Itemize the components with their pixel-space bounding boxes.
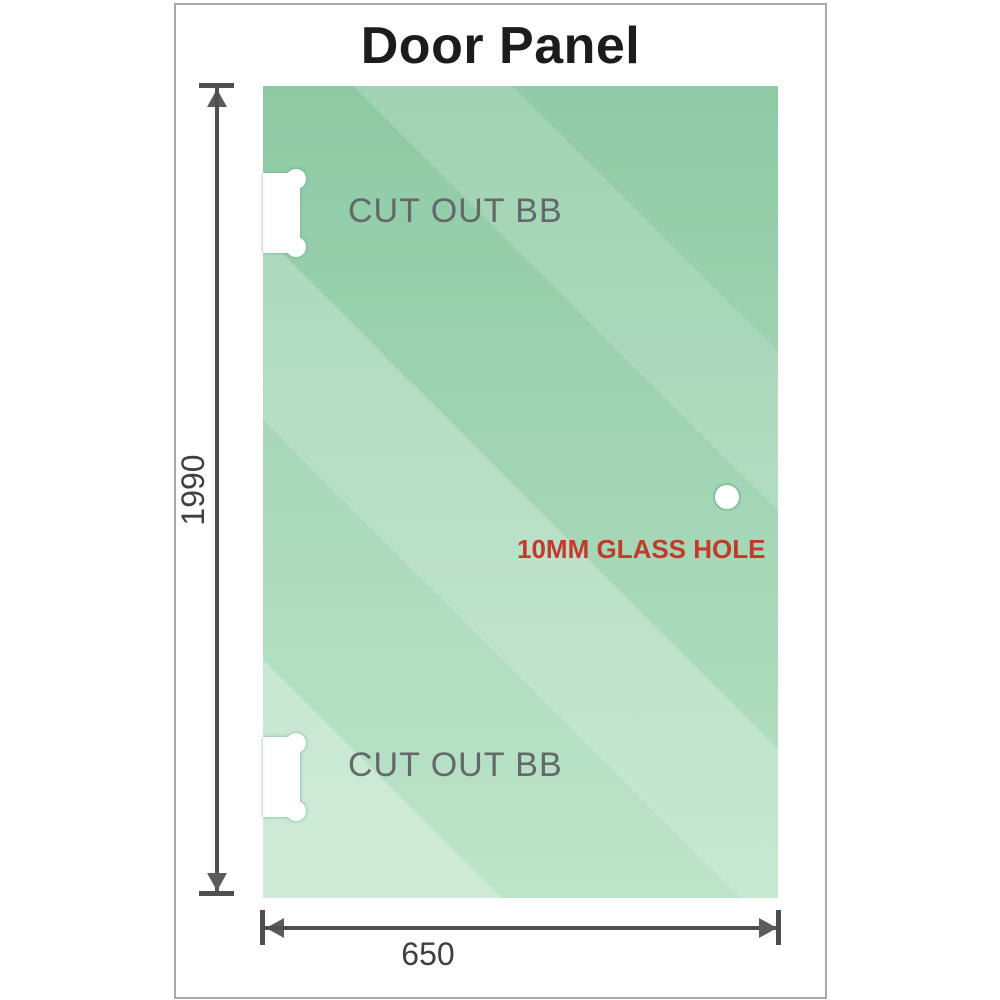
product-diagram-canvas: Door Panel CUT OUT BB CUT OUT BB 10MM GL…	[0, 0, 1000, 1000]
width-dimension-tick-right	[776, 910, 781, 945]
page-title: Door Panel	[174, 16, 827, 76]
width-dimension-value: 650	[383, 936, 473, 973]
hinge-cutout-top-lobe-lower	[286, 237, 306, 257]
hinge-cutout-top	[263, 169, 309, 257]
hinge-cutout-bottom-lobe-upper	[286, 733, 306, 753]
height-dimension-tick-bottom	[199, 891, 234, 896]
width-dimension-line	[265, 926, 776, 930]
height-dimension-line	[215, 88, 219, 891]
height-dimension-value: 1990	[175, 428, 211, 552]
glass-hole	[715, 485, 739, 509]
glass-hole-label: 10MM GLASS HOLE	[517, 534, 765, 565]
hinge-cutout-bottom	[263, 733, 309, 821]
hinge-cutout-bottom-lobe-lower	[286, 801, 306, 821]
cutout-label-top: CUT OUT BB	[348, 192, 563, 231]
hinge-cutout-top-lobe-upper	[286, 169, 306, 189]
arrow-down-icon	[207, 873, 227, 891]
cutout-label-bottom: CUT OUT BB	[348, 746, 563, 785]
arrow-right-icon	[759, 918, 777, 938]
